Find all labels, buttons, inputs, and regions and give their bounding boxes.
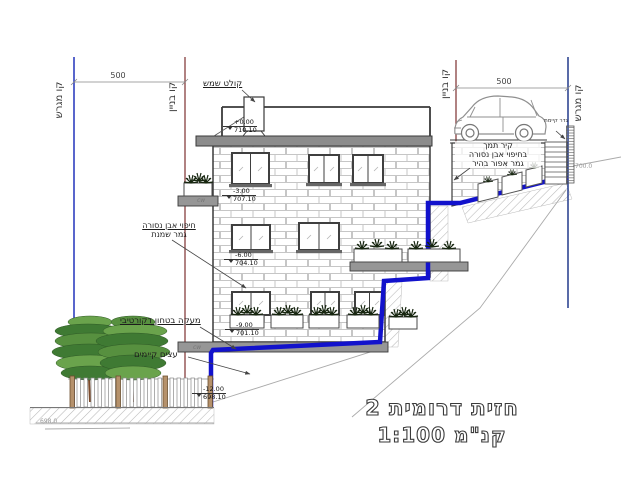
level-triangle-icon: [229, 329, 235, 333]
existing-trees-label: עצים קיימים: [134, 351, 178, 361]
retaining-wall-label-line1: קיר תמך: [455, 141, 541, 150]
level-triangle-icon: [228, 259, 234, 263]
setback-dimension-left: 500: [104, 71, 132, 80]
level-triangle-icon: [227, 126, 233, 130]
cladding-label-line1: חיפוי אבן נסורה: [128, 221, 210, 230]
topo-elevation-right: 700.0: [575, 163, 592, 170]
level-marker-roof: +0.00710.10: [223, 119, 259, 134]
fence: [30, 376, 214, 408]
level-triangle-icon: [226, 195, 232, 199]
left-lot-line-label: קו מגרש: [54, 70, 66, 130]
cladding-label-line2: גמר שמנת: [128, 230, 210, 239]
topo-elevation-left: 698.0: [40, 418, 57, 425]
slab-mark-lower: cw: [193, 344, 201, 351]
solar-heater-label: קולט שמש: [203, 80, 242, 90]
existing-fence-label: גדר קיימת: [541, 118, 571, 124]
level-marker-floor1: -6.00704.10: [224, 252, 260, 267]
retaining-wall-label-line2: בחיפוי אבן נסורה: [455, 150, 541, 159]
stair-railing: [567, 126, 575, 183]
drawing-scale: קנ"מ 1:100: [357, 423, 527, 447]
right-lot-line-label: קו מגרש: [573, 73, 585, 133]
decorative-railing-label: מעקה בטחון דקורטיבי: [120, 317, 201, 327]
stairs: [545, 142, 567, 184]
car: [454, 96, 546, 142]
elevation-drawing: קו מגרש קו בניין קו בניין קו מגרש 500 50…: [0, 0, 621, 480]
slab-mark-upper: cw: [197, 197, 205, 204]
setback-dimension-right: 500: [490, 77, 518, 86]
drawing-title: חזית דרומית 2: [357, 396, 527, 420]
level-marker-street: -12.00698.10: [192, 386, 228, 401]
level-marker-floor2: -3.00707.10: [222, 188, 258, 203]
level-marker-ground: -9.00701.10: [225, 322, 261, 337]
left-building-line-label: קו בניין: [167, 67, 179, 127]
retaining-wall-label-line3: גמר אפור בהיר: [455, 159, 541, 168]
level-triangle-icon: [196, 393, 202, 397]
right-building-line-label: קו בניין: [440, 54, 452, 114]
drawing-linework: [0, 0, 621, 480]
